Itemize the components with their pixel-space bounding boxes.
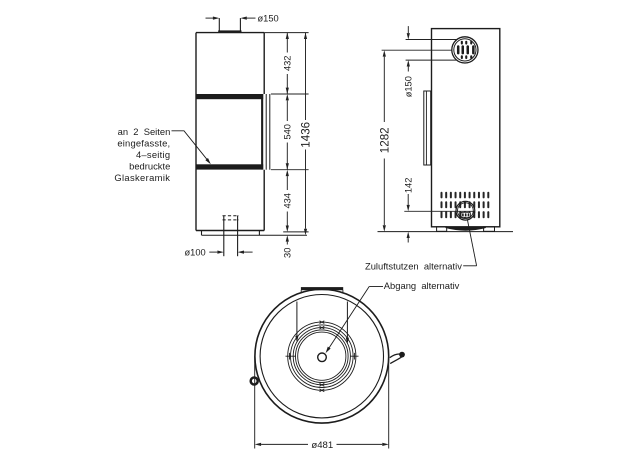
svg-text:142: 142 <box>404 178 414 194</box>
svg-text:eingefasste,: eingefasste, <box>117 137 170 148</box>
svg-text:1282: 1282 <box>378 127 391 153</box>
svg-text:30: 30 <box>283 248 293 258</box>
svg-text:Glaskeramik: Glaskeramik <box>114 172 170 183</box>
svg-text:bedruckte: bedruckte <box>129 161 170 172</box>
svg-text:Zuluftstutzen alternativ: Zuluftstutzen alternativ <box>365 260 462 271</box>
svg-text:an 2 Seiten: an 2 Seiten <box>118 126 171 137</box>
svg-text:1436: 1436 <box>300 122 313 148</box>
svg-text:ø481: ø481 <box>311 440 333 451</box>
svg-text:ø100: ø100 <box>184 247 205 257</box>
svg-text:540: 540 <box>283 124 293 140</box>
svg-text:432: 432 <box>283 56 293 72</box>
svg-text:ø150: ø150 <box>258 14 279 24</box>
svg-text:ø150: ø150 <box>404 76 414 97</box>
svg-text:434: 434 <box>283 193 293 209</box>
svg-text:Abgang alternativ: Abgang alternativ <box>384 280 460 291</box>
svg-text:4–seitig: 4–seitig <box>136 149 170 160</box>
